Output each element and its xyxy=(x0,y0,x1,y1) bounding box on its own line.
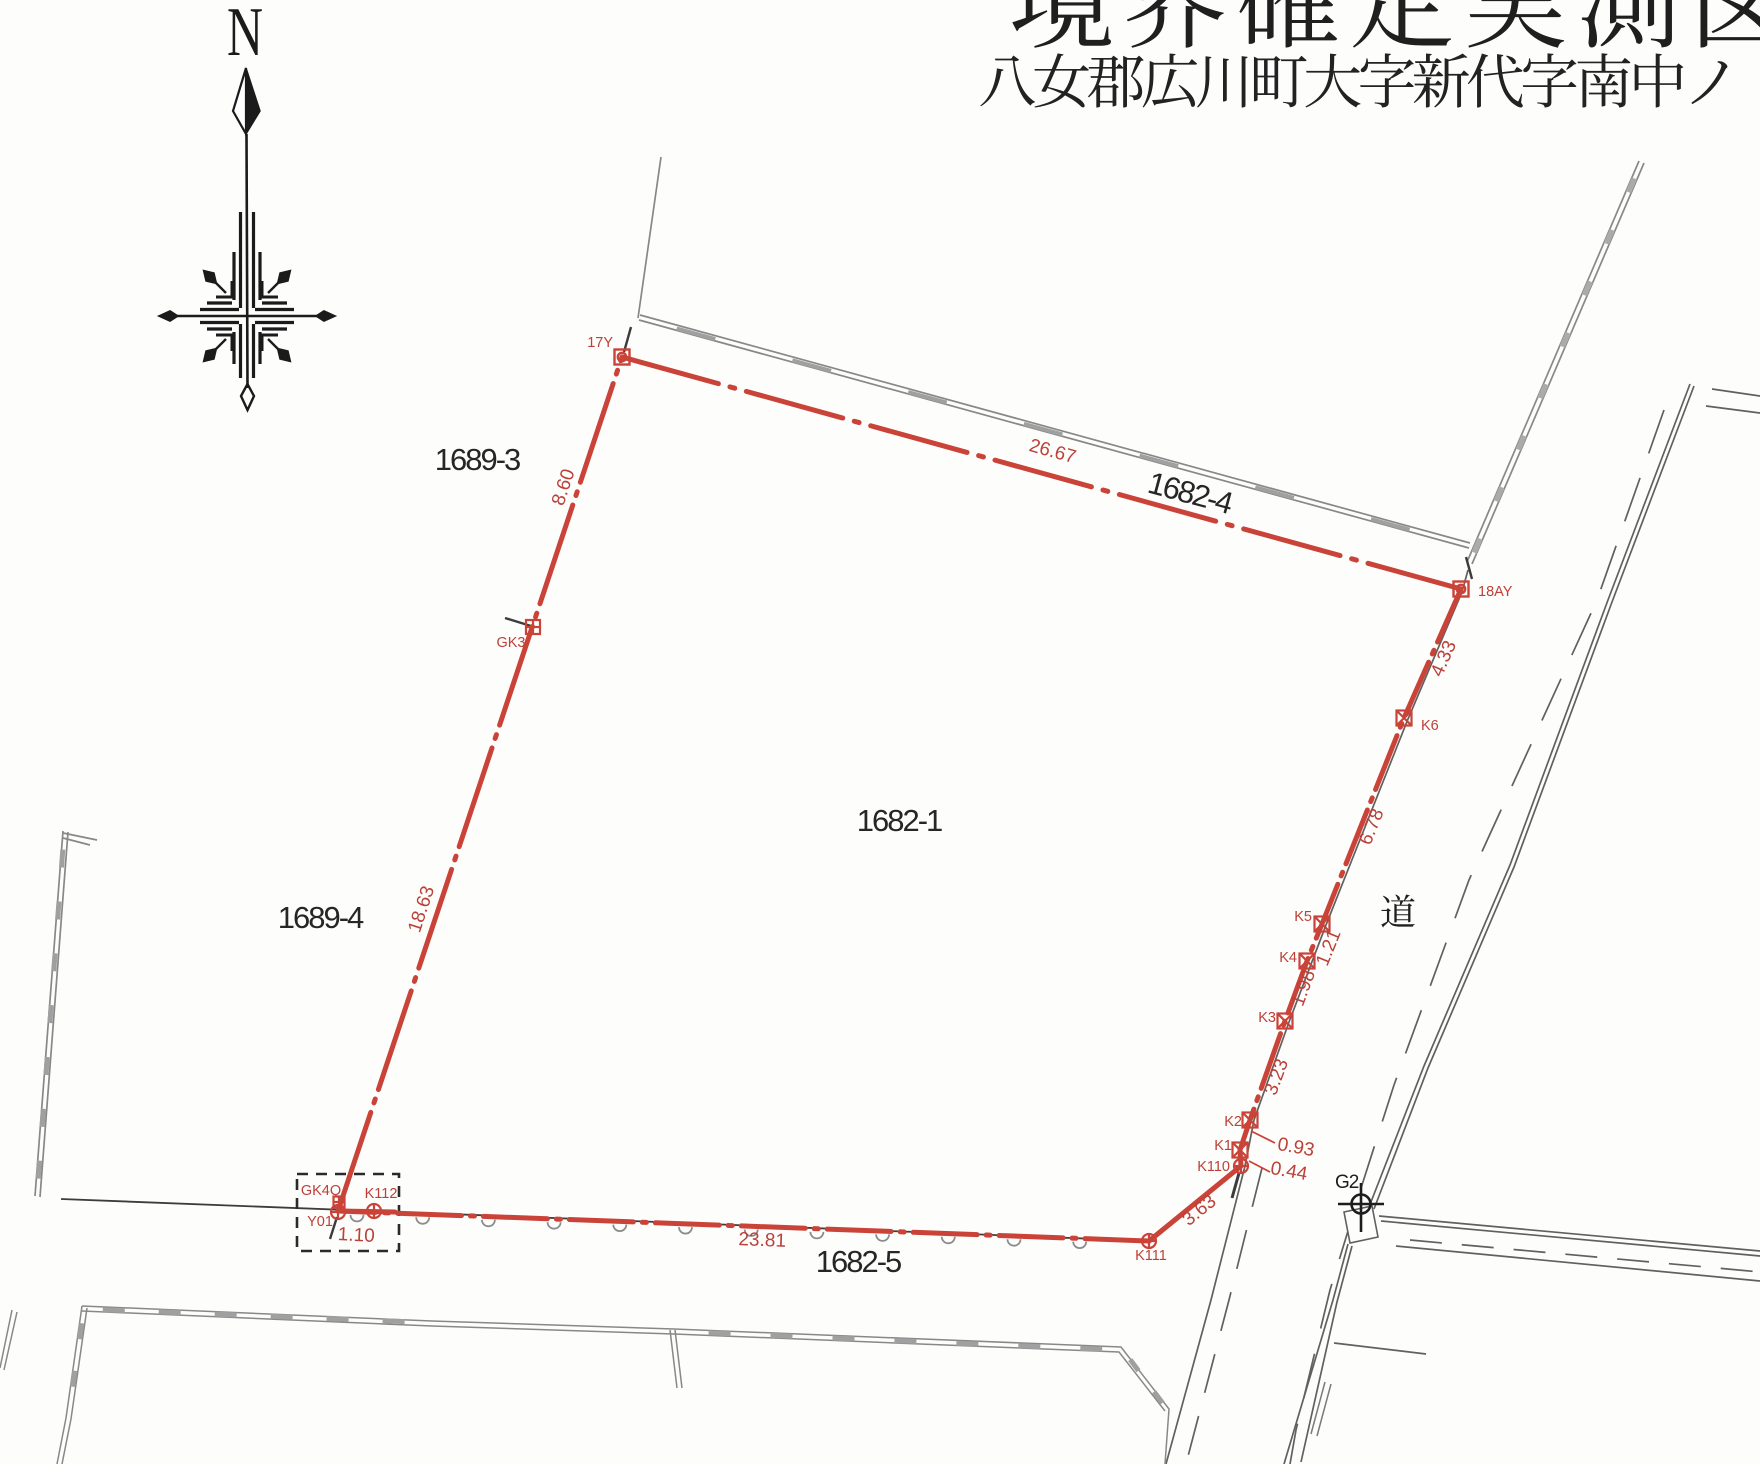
svg-text:K111: K111 xyxy=(1135,1248,1167,1264)
svg-text:4.33: 4.33 xyxy=(1427,638,1461,680)
svg-text:8.60: 8.60 xyxy=(548,466,579,508)
svg-text:6.78: 6.78 xyxy=(1355,806,1388,848)
svg-text:1689-4: 1689-4 xyxy=(278,900,364,935)
svg-text:K112: K112 xyxy=(365,1186,398,1202)
svg-text:1689-3: 1689-3 xyxy=(435,442,520,477)
svg-text:K5: K5 xyxy=(1294,909,1312,925)
svg-text:17Y: 17Y xyxy=(587,335,613,351)
svg-text:1682-5: 1682-5 xyxy=(816,1244,901,1279)
svg-text:1682-1: 1682-1 xyxy=(857,803,942,838)
svg-text:3.63: 3.63 xyxy=(1179,1191,1221,1231)
svg-text:26.67: 26.67 xyxy=(1027,435,1078,468)
svg-text:1.10: 1.10 xyxy=(337,1224,375,1247)
svg-text:GK3: GK3 xyxy=(496,635,525,651)
svg-text:K4: K4 xyxy=(1279,950,1297,966)
svg-text:GK4Q: GK4Q xyxy=(301,1183,341,1199)
svg-text:K110: K110 xyxy=(1197,1159,1230,1175)
svg-text:K2: K2 xyxy=(1224,1114,1242,1130)
svg-text:K1: K1 xyxy=(1214,1138,1232,1154)
svg-text:N: N xyxy=(227,0,263,71)
svg-text:18AY: 18AY xyxy=(1478,584,1513,600)
svg-text:1.98: 1.98 xyxy=(1288,967,1320,1009)
svg-text:0.93: 0.93 xyxy=(1276,1134,1316,1161)
svg-text:Y01: Y01 xyxy=(307,1214,333,1230)
svg-text:23.81: 23.81 xyxy=(738,1229,786,1252)
svg-text:0.44: 0.44 xyxy=(1269,1158,1309,1185)
svg-text:K3: K3 xyxy=(1258,1010,1276,1026)
svg-text:3.23: 3.23 xyxy=(1261,1056,1293,1098)
svg-text:G2: G2 xyxy=(1335,1172,1359,1193)
svg-text:K6: K6 xyxy=(1421,718,1439,734)
